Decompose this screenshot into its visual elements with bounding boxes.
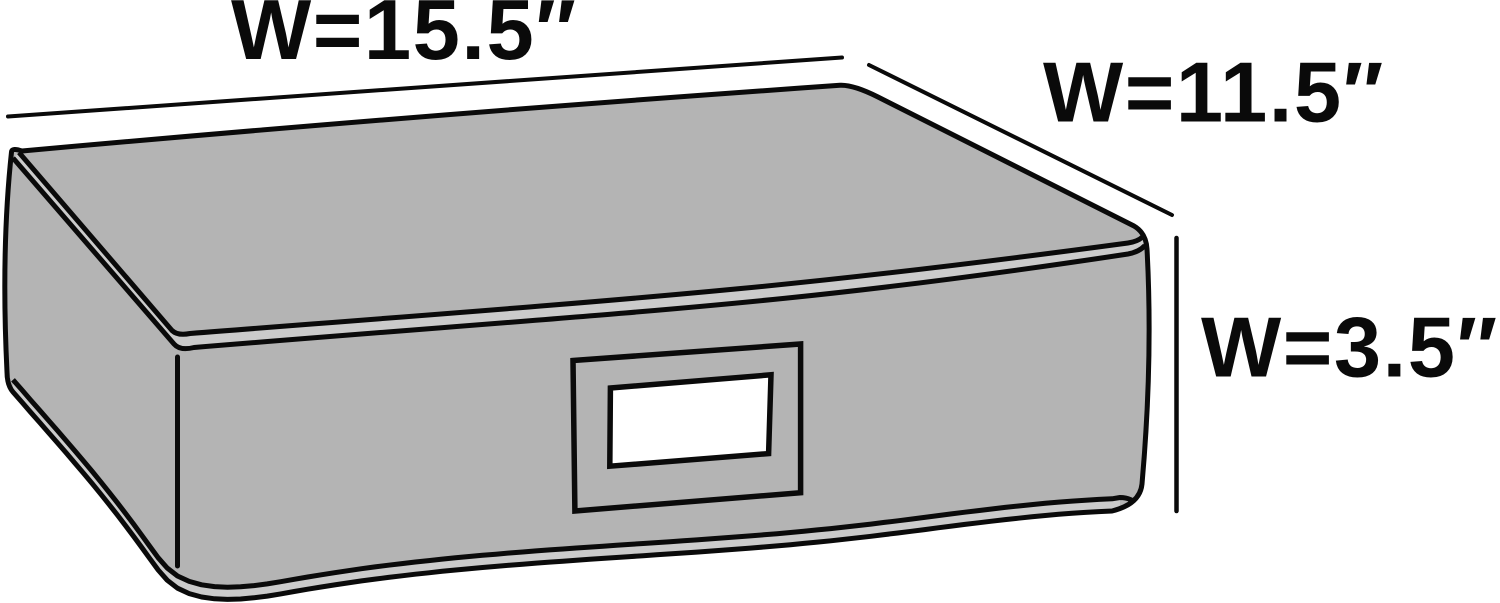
svg-text:W=11.5″: W=11.5″: [1043, 46, 1385, 141]
svg-text:W=3.5″: W=3.5″: [1201, 301, 1499, 396]
svg-text:W=15.5″: W=15.5″: [231, 0, 578, 78]
